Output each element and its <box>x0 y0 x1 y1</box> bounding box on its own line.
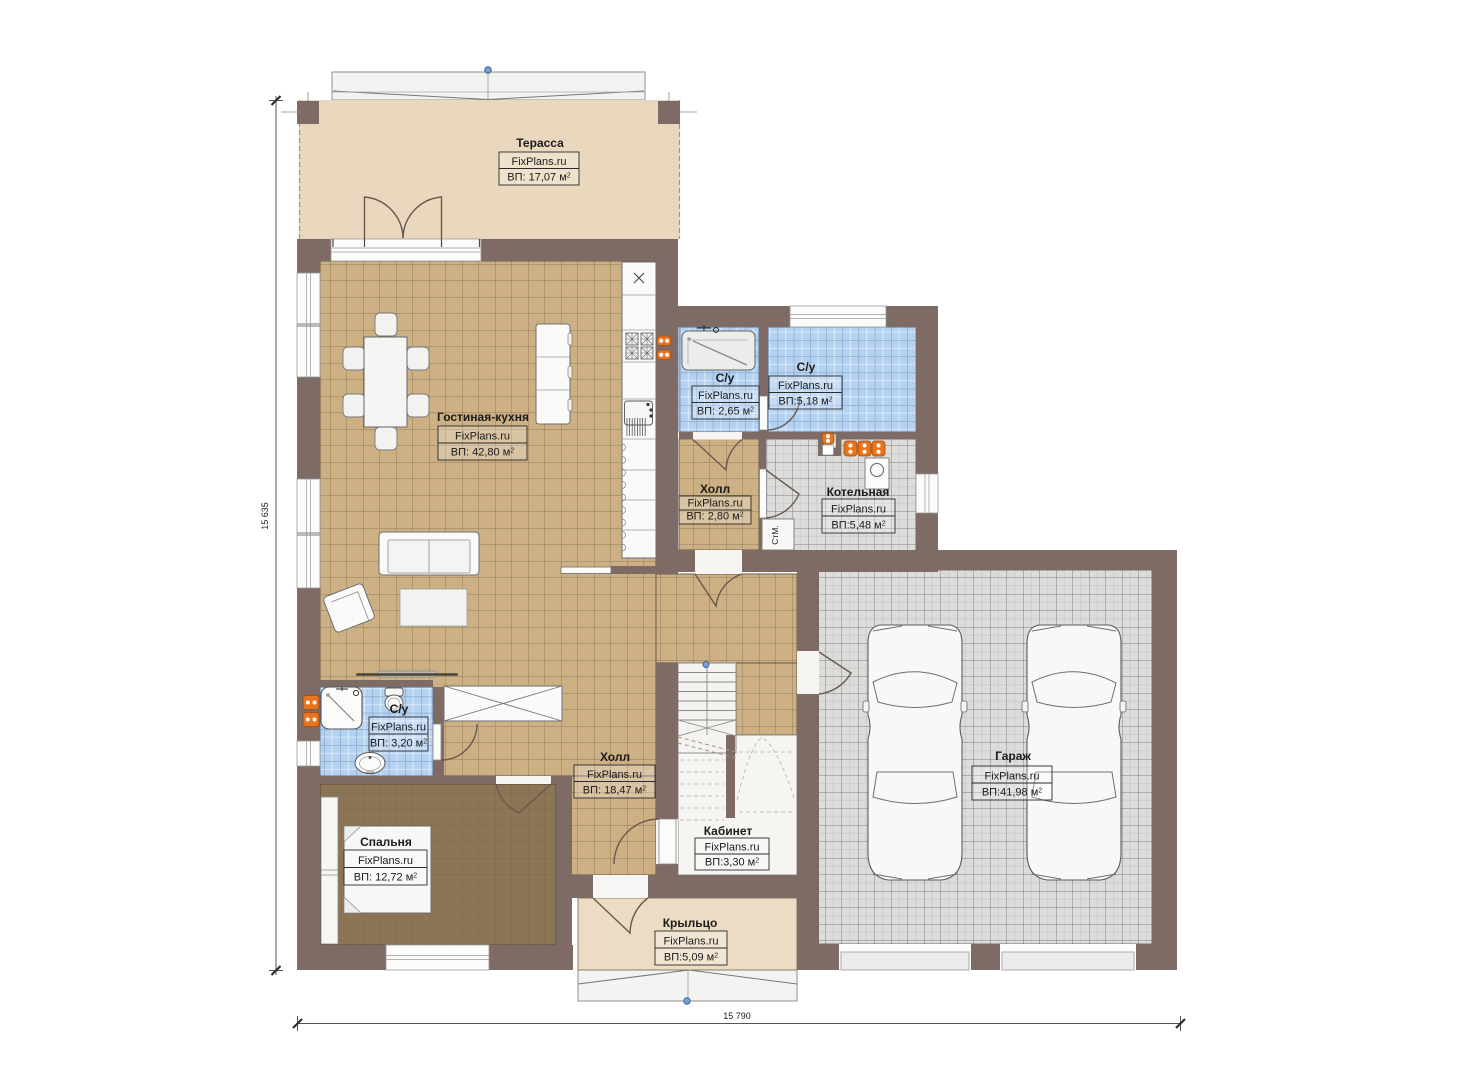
svg-text:ВП: 2,65 м2: ВП: 2,65 м2 <box>697 406 754 418</box>
svg-text:FixPlans.ru: FixPlans.ru <box>698 390 753 402</box>
svg-text:ВП: 3,20 м2: ВП: 3,20 м2 <box>370 738 427 750</box>
svg-text:Котельная: Котельная <box>827 485 890 499</box>
svg-text:Кабинет: Кабинет <box>704 824 753 838</box>
svg-text:FixPlans.ru: FixPlans.ru <box>778 380 833 392</box>
svg-text:ВП:5,48 м2: ВП:5,48 м2 <box>831 520 885 532</box>
svg-text:Крыльцо: Крыльцо <box>663 916 718 930</box>
svg-text:С/у: С/у <box>797 360 816 374</box>
svg-text:ВП: 12,72 м2: ВП: 12,72 м2 <box>354 872 418 884</box>
svg-text:FixPlans.ru: FixPlans.ru <box>663 936 718 948</box>
svg-text:Терасса: Терасса <box>516 136 564 150</box>
svg-text:Холл: Холл <box>600 750 630 764</box>
svg-text:ВП: 2,80 м2: ВП: 2,80 м2 <box>686 511 743 523</box>
svg-text:FixPlans.ru: FixPlans.ru <box>371 722 426 734</box>
svg-text:FixPlans.ru: FixPlans.ru <box>704 842 759 854</box>
svg-text:15 790: 15 790 <box>723 1011 751 1021</box>
svg-text:FixPlans.ru: FixPlans.ru <box>358 855 413 867</box>
svg-text:FixPlans.ru: FixPlans.ru <box>587 769 642 781</box>
svg-text:СтМ.: СтМ. <box>770 525 780 544</box>
svg-text:ВП:3,30 м2: ВП:3,30 м2 <box>705 857 759 869</box>
svg-text:ВП: 17,07 м2: ВП: 17,07 м2 <box>507 172 571 184</box>
svg-text:FixPlans.ru: FixPlans.ru <box>984 771 1039 783</box>
svg-text:С/у: С/у <box>716 371 735 385</box>
svg-text:ВП: 42,80 м2: ВП: 42,80 м2 <box>451 447 515 459</box>
svg-text:FixPlans.ru: FixPlans.ru <box>831 504 886 516</box>
svg-text:FixPlans.ru: FixPlans.ru <box>687 498 742 510</box>
svg-text:15 635: 15 635 <box>260 502 270 530</box>
svg-text:FixPlans.ru: FixPlans.ru <box>455 431 510 443</box>
svg-text:ВП:5,09 м2: ВП:5,09 м2 <box>664 952 718 964</box>
svg-text:ВП: 18,47 м2: ВП: 18,47 м2 <box>583 785 647 797</box>
svg-text:ВП:41,98 м2: ВП:41,98 м2 <box>982 787 1042 799</box>
svg-text:С/у: С/у <box>390 702 409 716</box>
svg-text:Гараж: Гараж <box>995 749 1031 763</box>
svg-text:ВП:5,18 м2: ВП:5,18 м2 <box>778 396 832 408</box>
svg-text:Гостиная-кухня: Гостиная-кухня <box>437 410 529 424</box>
svg-text:Холл: Холл <box>700 482 730 496</box>
svg-text:FixPlans.ru: FixPlans.ru <box>511 156 566 168</box>
svg-text:Спальня: Спальня <box>360 835 412 849</box>
